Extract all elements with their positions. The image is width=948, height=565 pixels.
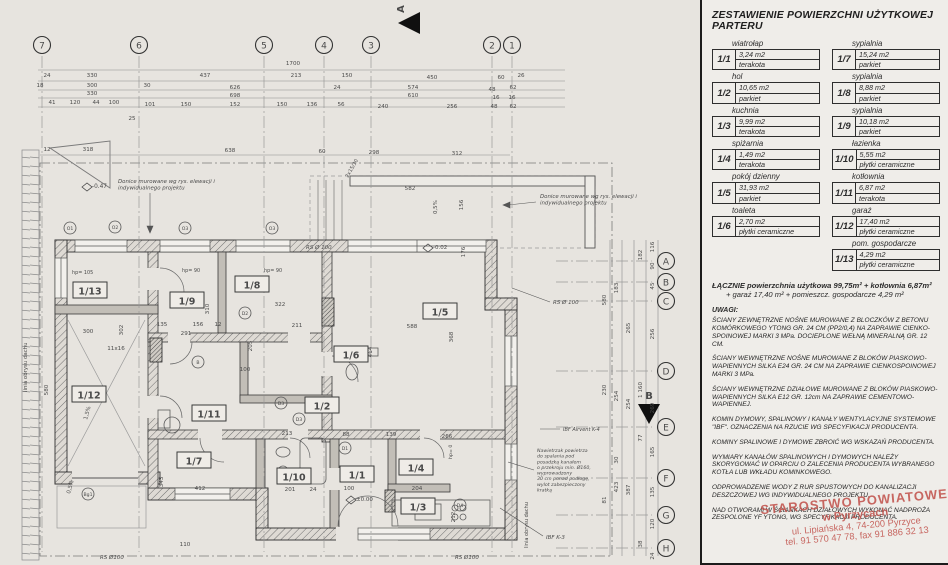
dimension-text: 12 [214, 322, 221, 328]
grid-label-7: 7 [39, 42, 45, 52]
dimension-text: 302 [119, 325, 125, 336]
dimension-text: 182 [638, 250, 644, 261]
room-table-column-1: wiatrołap1/13,24 m2terakotahol1/210,65 m… [712, 40, 820, 274]
room-entry-1-8: sypialnia1/88,88 m2parkiet [832, 73, 940, 103]
room-tag-1-11: 1/11 [197, 410, 220, 421]
dimension-text: 298 [369, 150, 380, 156]
dimension-text: 120 [650, 518, 656, 529]
room-floor: terakota [736, 127, 819, 136]
dimension-text: 387 [626, 484, 632, 495]
grid-label-F: F [663, 475, 668, 485]
dimension-text: 610 [408, 93, 419, 99]
room-area: 10,65 m2 [736, 83, 819, 93]
dimension-text: 291 [181, 331, 192, 337]
room-area: 5,55 m2 [857, 150, 940, 160]
room-name: sypialnia [852, 107, 940, 116]
dimension-text: 266 [442, 434, 453, 440]
element-marker-label: D4 [457, 503, 464, 509]
room-tag-1-5: 1/5 [432, 308, 449, 319]
dimension-text: 81 [602, 496, 608, 504]
element-marker-label: O3 [269, 226, 276, 232]
plan-annotation: 1,5% [83, 406, 92, 421]
plan-annotation: Nawietrzak powietrzado spalania podposad… [536, 448, 591, 493]
room-tag-1-1: 1/1 [349, 471, 366, 482]
dimension-text: 300 [83, 329, 94, 335]
dimension-text: 204 [412, 486, 423, 492]
room-area: 31,93 m2 [736, 183, 819, 193]
room-name: pom. gospodarcze [852, 240, 940, 249]
area-summary-line1: ŁĄCZNIE powierzchnia użytkowa 99,75m² + … [712, 281, 940, 291]
dimension-text: 343 [159, 476, 165, 487]
dimension-text: 30 [143, 83, 151, 89]
dimension-text: 60 [497, 75, 505, 81]
dimension-text: 56 [337, 102, 345, 108]
room-number: 1/8 [832, 82, 856, 103]
room-entry-1-11: kotłownia1/116,87 m2terakota [832, 173, 940, 203]
dimension-text: 211 [292, 323, 303, 329]
dimension-text: 12 [43, 147, 50, 153]
plan-annotation: linia obrysu dachu [23, 342, 29, 392]
grid-label-E: E [663, 424, 669, 434]
dimension-text: 698 [230, 93, 241, 99]
room-tag-1-13: 1/13 [78, 287, 101, 298]
exterior-walls [55, 240, 517, 540]
dimension-text: 1 160 [638, 382, 644, 398]
stamp-phone: tel. 91 570 47 78, fax 91 886 32 13 [750, 522, 948, 551]
dimension-text: 156 [193, 322, 204, 328]
windows [55, 240, 517, 540]
dimension-text: 16 [492, 95, 500, 101]
room-tag-1-12: 1/12 [77, 391, 100, 402]
section-label-A: A [396, 5, 407, 13]
room-entry-1-7: sypialnia1/715,24 m2parkiet [832, 40, 940, 70]
room-floor: terakota [856, 194, 939, 203]
room-entry-1-9: sypialnia1/910,18 m2parkiet [832, 107, 940, 137]
section-label-B: B [645, 391, 653, 402]
dimension-text: 139 [386, 432, 397, 438]
dimension-text: 48 [490, 104, 498, 110]
dimension-text: 626 [230, 85, 241, 91]
washbasin [276, 447, 290, 457]
blueprint-scan: 7654321ABCDEFGHAB1/131/91/81/51/61/121/1… [0, 0, 948, 565]
legend-panel: ZESTAWIENIE POWIERZCHNI UŻYTKOWEJ PARTER… [700, 0, 948, 565]
room-number: 1/9 [832, 116, 856, 137]
dimension-text: 256 [650, 328, 656, 339]
dimension-text: 256 [447, 104, 458, 110]
plan-annotation: RS Ø 100 [553, 299, 579, 306]
plan-annotation: -0.47 [92, 184, 107, 190]
plan-annotation: RS Ø 100 [306, 244, 332, 251]
room-area: 17,40 m2 [857, 217, 940, 227]
dimension-text: 318 [83, 147, 94, 153]
dimension-text: 156 [459, 199, 465, 210]
room-number: 1/10 [832, 149, 857, 170]
room-number: 1/7 [832, 49, 856, 70]
room-tag-1-3: 1/3 [410, 503, 427, 514]
dimension-text: 62 [509, 104, 516, 110]
room-name: kuchnia [732, 107, 820, 116]
dimension-text: 464 [368, 346, 374, 357]
dimension-text: 330 [87, 91, 98, 97]
dimension-text: 24 [650, 552, 656, 560]
dimension-text: 254 [614, 390, 620, 401]
room-floor: parkiet [856, 60, 939, 69]
dimension-text: 120 [70, 100, 81, 106]
room-tag-1-4: 1/4 [408, 464, 425, 475]
grid-label-H: H [663, 545, 670, 555]
room-entry-1-3: kuchnia1/39,99 m2terakota [712, 107, 820, 137]
room-floor: parkiet [856, 127, 939, 136]
room-tag-1-9: 1/9 [179, 297, 196, 308]
room-entry-1-4: spiżarnia1/41,49 m2terakota [712, 140, 820, 170]
terrace [310, 176, 595, 248]
construction-note: WYMIARY KANAŁÓW SPALINOWYCH I DYMOWYCH N… [712, 454, 940, 477]
dimension-text: 582 [405, 186, 416, 192]
dimension-text: 100 [344, 486, 355, 492]
dimension-text: 574 [408, 85, 419, 91]
element-marker-label: D3 [278, 401, 285, 407]
element-marker-label: O3 [182, 226, 189, 232]
grid-label-C: C [663, 298, 669, 308]
grid-label-D: D [663, 368, 670, 378]
plan-annotation: -0.02 [433, 245, 447, 251]
room-number: 1/6 [712, 216, 736, 237]
dimension-text: 450 [427, 75, 438, 81]
plan-annotation: RS Ø100 [100, 554, 124, 561]
element-marker-label: D2 [242, 311, 249, 317]
element-marker-label: D3 [296, 417, 303, 423]
plan-annotation: IBF K-3 [546, 535, 565, 541]
dimension-text: 330 [87, 73, 98, 79]
room-name: wiatrołap [732, 40, 820, 49]
dimension-text: 269 [650, 402, 656, 413]
dimension-text: 1700 [286, 61, 301, 67]
dimension-text: 100 [240, 367, 251, 373]
room-area: 1,49 m2 [736, 150, 819, 160]
dimension-text: 150 [342, 73, 353, 79]
grid-label-2: 2 [489, 42, 495, 52]
room-number: 1/2 [712, 82, 736, 103]
dimension-text: 201 [285, 487, 296, 493]
dimension-text: 176 [461, 246, 467, 257]
dimension-text: 136 [307, 102, 318, 108]
element-marker-label: O1 [67, 226, 74, 232]
plan-annotation: hp= 90 [264, 268, 282, 274]
room-entry-1-6: toaleta1/62,70 m2płytki ceramiczne [712, 207, 820, 237]
element-marker-label: D1 [342, 446, 349, 452]
construction-note: ODPROWADZENIE WODY Z RUR SPUSTOWYCH DO K… [712, 484, 940, 500]
construction-note: KOMINY SPALINOWE I DYMOWE ZBROIĆ WG WSKA… [712, 439, 940, 447]
room-number: 1/3 [712, 116, 736, 137]
room-number: 1/4 [712, 149, 736, 170]
dimension-text: 90 [650, 262, 656, 270]
dimension-text: 48 [488, 87, 496, 93]
room-name: łazienka [852, 140, 940, 149]
room-area: 15,24 m2 [856, 50, 939, 60]
plan-annotation: RS Ø100 [455, 554, 479, 561]
section-b-arrow [638, 404, 660, 424]
dimension-text: 38 [638, 540, 644, 548]
dimension-text: 150 [277, 102, 288, 108]
ramp-outline [50, 141, 110, 188]
room-floor: terakota [736, 160, 819, 169]
room-entry-1-13: pom. gospodarcze1/134,29 m2płytki cerami… [832, 240, 940, 270]
grid-label-G: G [663, 512, 670, 522]
dimension-text: 205 [248, 340, 254, 351]
room-name: hol [732, 73, 820, 82]
grid-label-3: 3 [368, 42, 374, 52]
construction-note: ŚCIANY WEWNĘTRZNE DZIAŁOWE MUROWANE Z BL… [712, 386, 940, 409]
room-floor: parkiet [736, 94, 819, 103]
room-name: kotłownia [852, 173, 940, 182]
notes-header: UWAGI: [712, 307, 940, 314]
room-floor: płytki ceramiczne [736, 227, 819, 236]
room-area: 4,29 m2 [857, 250, 940, 260]
room-tag-1-6: 1/6 [343, 351, 360, 362]
room-entry-1-12: garaż1/1217,40 m2płytki ceramiczne [832, 207, 940, 237]
dimension-text: 312 [452, 151, 463, 157]
room-number: 1/11 [832, 182, 856, 203]
room-name: pokój dzienny [732, 173, 820, 182]
section-a-arrow [398, 12, 420, 34]
dimension-text: 150 [181, 102, 192, 108]
plan-annotation: Donice murowane wg rys. elewacji iindywi… [118, 179, 215, 191]
dimension-text: 240 [378, 104, 389, 110]
room-floor: płytki ceramiczne [857, 227, 940, 236]
room-area: 9,99 m2 [736, 117, 819, 127]
dimension-text: 24 [309, 487, 317, 493]
dimension-text: 77 [638, 434, 644, 442]
dimension-text: 135 [157, 322, 168, 328]
dimension-text: 116 [650, 241, 656, 252]
grid-label-A: A [663, 258, 670, 268]
room-floor: terakota [736, 60, 819, 69]
room-tag-1-10: 1/10 [282, 473, 306, 484]
dimension-text: 11x16 [107, 346, 125, 352]
dimension-text: 24 [43, 73, 51, 79]
panel-title: ZESTAWIENIE POWIERZCHNI UŻYTKOWEJ PARTER… [712, 10, 940, 32]
grid-label-B: B [663, 279, 669, 289]
plan-annotation: hp= 0 [448, 445, 454, 459]
dimension-text: 18 [36, 83, 44, 89]
dimension-text: 25 [128, 116, 136, 122]
room-tag-1-7: 1/7 [186, 457, 203, 468]
dimension-text: 588 [407, 324, 418, 330]
room-number: 1/5 [712, 182, 736, 203]
plan-annotation: IBF Airvent K-4 [563, 427, 600, 433]
section-triangles [398, 12, 660, 424]
grid-label-1: 1 [509, 42, 515, 52]
room-area: 8,88 m2 [856, 83, 939, 93]
dimension-text: 310 [205, 303, 211, 314]
dimension-text: 30 [614, 456, 620, 464]
dimension-text: 60 [318, 149, 326, 155]
plan-annotation: Donice murowane wg rys. elewacji iindywi… [540, 194, 637, 206]
plan-annotation: 0,5% [433, 200, 439, 214]
room-area: 10,18 m2 [856, 117, 939, 127]
dimension-text: 165 [650, 446, 656, 457]
dimension-text: 322 [275, 302, 286, 308]
plan-annotation: hp= 90 [182, 268, 200, 274]
dimension-text: 213 [282, 431, 293, 437]
area-summary-line2: + garaż 17,40 m² + pomieszcz. gospodarcz… [726, 290, 940, 300]
grid-label-6: 6 [136, 42, 142, 52]
room-floor: parkiet [856, 94, 939, 103]
dimension-text: 135 [650, 486, 656, 497]
room-number: 1/1 [712, 49, 736, 70]
dimension-text: 88 [342, 432, 350, 438]
room-tag-1-8: 1/8 [244, 281, 261, 292]
dimension-text: 580 [44, 384, 50, 395]
dimension-text: 45 [650, 282, 656, 290]
room-entry-1-1: wiatrołap1/13,24 m2terakota [712, 40, 820, 70]
grid-label-4: 4 [321, 42, 327, 52]
grid-label-5: 5 [261, 42, 267, 52]
dimension-text: 265 [626, 322, 632, 333]
notes-block: ŚCIANY ZEWNĘTRZNE NOŚNE MUROWANE Z BLOCZ… [712, 317, 940, 522]
dimension-text: 101 [145, 102, 156, 108]
planter-wall [585, 176, 595, 248]
room-floor: płytki ceramiczne [857, 260, 940, 269]
construction-note: KOMIN DYMOWY, SPALINOWY I KANAŁY WENTYLA… [712, 416, 940, 432]
room-table-column-2: sypialnia1/715,24 m2parkietsypialnia1/88… [832, 40, 940, 274]
hob-burner [460, 514, 466, 520]
dimension-text: 24 [333, 85, 341, 91]
dimension-text: 300 [87, 83, 98, 89]
room-number: 1/12 [832, 216, 857, 237]
dimension-text: 368 [449, 331, 455, 342]
room-area: 3,24 m2 [736, 50, 819, 60]
element-marker-label: Bg1 [84, 492, 93, 498]
dimension-text: 152 [230, 102, 241, 108]
element-marker-label: O2 [112, 225, 119, 231]
room-name: garaż [852, 207, 940, 216]
construction-note: NAD OTWORAMI W ŚCIANKACH DZIAŁOWYCH WYKO… [712, 507, 940, 523]
dimension-text: 638 [225, 148, 236, 154]
construction-note: ŚCIANY WEWNĘTRZNE NOŚNE MUROWANE Z BLOKÓ… [712, 355, 940, 378]
room-name: spiżarnia [732, 140, 820, 149]
room-area: 6,87 m2 [856, 183, 939, 193]
room-tag-1-2: 1/2 [314, 402, 331, 413]
dimension-text: 230 [602, 384, 608, 395]
dimension-text: 41 [48, 100, 56, 106]
room-name: toaleta [732, 207, 820, 216]
dimension-text: 110 [180, 542, 191, 548]
plan-annotation: linia obrysu dachu [524, 502, 530, 548]
dimension-text: 62 [509, 85, 516, 91]
room-entry-1-2: hol1/210,65 m2parkiet [712, 73, 820, 103]
interior-walls [55, 252, 505, 528]
dimension-text: 44 [92, 100, 100, 106]
room-floor: parkiet [736, 194, 819, 203]
room-entry-1-10: łazienka1/105,55 m2płytki ceramiczne [832, 140, 940, 170]
room-floor: płytki ceramiczne [857, 160, 940, 169]
construction-note: ŚCIANY ZEWNĘTRZNE NOŚNE MUROWANE Z BLOCZ… [712, 317, 940, 348]
dimension-text: 412 [195, 486, 206, 492]
planter-wall [350, 176, 595, 186]
room-name: sypialnia [852, 40, 940, 49]
room-entry-1-5: pokój dzienny1/531,93 m2parkiet [712, 173, 820, 203]
dimension-text: 423 [614, 481, 620, 492]
dimension-text: 254 [626, 398, 632, 409]
dimension-text: 213 [291, 73, 302, 79]
element-marker-label: B [196, 360, 199, 366]
plan-annotation: hp= 105 [72, 270, 93, 276]
dimension-text: 212 [451, 512, 457, 523]
dimension-text: 437 [200, 73, 211, 79]
dimension-text: 100 [109, 100, 120, 106]
room-number: 1/13 [832, 249, 857, 270]
plan-annotation: ±0.00 [356, 497, 373, 503]
room-table: wiatrołap1/13,24 m2terakotahol1/210,65 m… [712, 40, 940, 274]
dimension-text: 16 [508, 95, 516, 101]
dimension-text: 183 [614, 282, 620, 293]
dimension-text: 580 [602, 294, 608, 305]
room-area: 2,70 m2 [736, 217, 819, 227]
dimension-text: 26 [517, 73, 525, 79]
room-name: sypialnia [852, 73, 940, 82]
